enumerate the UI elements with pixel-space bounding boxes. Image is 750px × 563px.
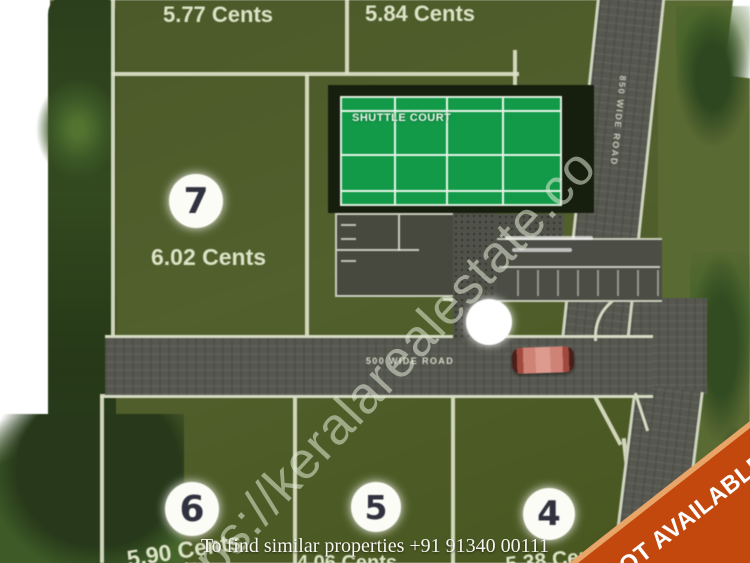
building-text-smudge [512, 248, 572, 252]
building-text-smudge [505, 236, 593, 240]
side-road-label: 850 WIDE ROAD [609, 75, 628, 166]
site-plan: 850 WIDE ROAD 500 WIDE ROAD SHUTTLE COUR… [0, 0, 750, 563]
plot-number-badge-5: 5 [351, 482, 401, 532]
marker-dot-icon [466, 299, 512, 345]
building-line [337, 249, 419, 251]
plot-area-label: 6.02 Cents [126, 244, 291, 271]
shuttle-court-label: SHUTTLE COURT [352, 112, 488, 124]
car-icon [512, 346, 575, 374]
parking-slot-mark [341, 224, 356, 226]
plot-number: 5 [365, 488, 388, 527]
plot-boundary-line [111, 0, 115, 338]
plot-boundary-line [305, 74, 309, 336]
main-road-label: 500 WIDE ROAD [330, 356, 490, 366]
plot-number-badge-6: 6 [165, 482, 219, 536]
plot-number-badge-4: 4 [523, 488, 575, 540]
plot-area-label: 5.84 Cents [340, 1, 500, 27]
plot-number: 7 [183, 181, 208, 222]
tree-icon [36, 78, 120, 180]
plot-boundary-line [111, 72, 519, 76]
trees [676, 6, 750, 148]
plot-area-label: 5.77 Cents [138, 2, 298, 28]
parking-slot-mark [341, 260, 356, 262]
parking-line [499, 266, 660, 268]
plot-number-badge-7: 7 [169, 174, 223, 228]
parking-slots [499, 270, 660, 296]
plot-number: 4 [537, 494, 561, 534]
plot-number: 6 [179, 489, 204, 530]
building-line [398, 215, 400, 251]
listing-image: 850 WIDE ROAD 500 WIDE ROAD SHUTTLE COUR… [0, 0, 750, 563]
parking-slot-mark [341, 238, 356, 240]
